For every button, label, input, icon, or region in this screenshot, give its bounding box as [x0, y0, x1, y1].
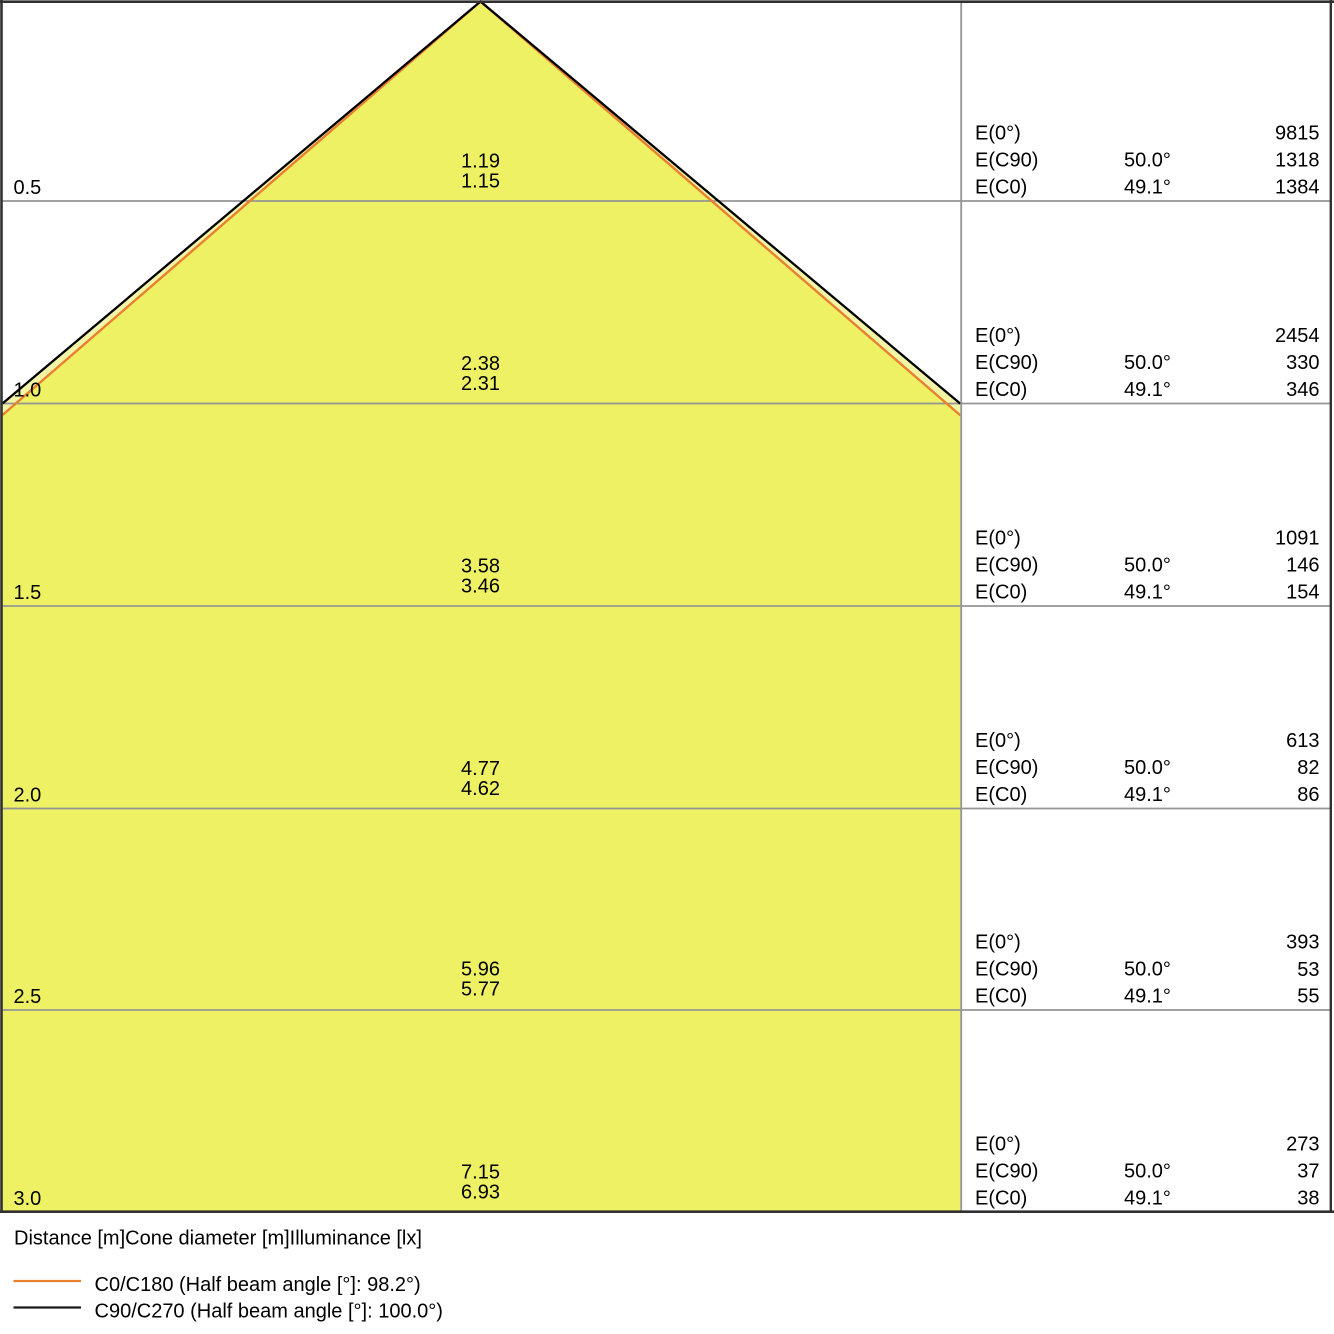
svg-text:3.58: 3.58	[461, 556, 500, 578]
svg-text:330: 330	[1286, 352, 1319, 374]
svg-text:37: 37	[1297, 1161, 1319, 1183]
svg-text:E(C90): E(C90)	[975, 150, 1038, 172]
svg-text:1091: 1091	[1275, 528, 1320, 550]
svg-text:49.1°: 49.1°	[1124, 986, 1171, 1008]
svg-text:2.5: 2.5	[14, 986, 42, 1008]
svg-text:50.0°: 50.0°	[1124, 555, 1171, 577]
svg-text:1.5: 1.5	[14, 582, 42, 604]
svg-text:3.0: 3.0	[14, 1188, 42, 1210]
svg-text:E(0°): E(0°)	[975, 1134, 1021, 1156]
svg-text:1318: 1318	[1275, 150, 1320, 172]
svg-text:C0/C180 (Half beam angle [°]:: C0/C180 (Half beam angle [°]: 98.2°)	[95, 1274, 421, 1296]
svg-text:E(C0): E(C0)	[975, 784, 1027, 806]
svg-text:E(C0): E(C0)	[975, 986, 1027, 1008]
svg-text:E(0°): E(0°)	[975, 123, 1021, 145]
svg-text:E(C90): E(C90)	[975, 757, 1038, 779]
svg-text:E(C0): E(C0)	[975, 379, 1027, 401]
svg-text:0.5: 0.5	[14, 177, 42, 199]
svg-text:2.38: 2.38	[461, 353, 500, 375]
svg-text:49.1°: 49.1°	[1124, 177, 1171, 199]
svg-text:55: 55	[1297, 986, 1319, 1008]
svg-text:4.62: 4.62	[461, 778, 500, 800]
svg-text:1.19: 1.19	[461, 151, 500, 173]
svg-text:273: 273	[1286, 1134, 1319, 1156]
svg-text:1.0: 1.0	[14, 380, 42, 402]
svg-text:6.93: 6.93	[461, 1182, 500, 1204]
svg-text:1.15: 1.15	[461, 171, 500, 193]
svg-text:86: 86	[1297, 784, 1319, 806]
svg-text:E(C0): E(C0)	[975, 1188, 1027, 1210]
svg-text:53: 53	[1297, 959, 1319, 981]
svg-text:9815: 9815	[1275, 123, 1320, 145]
svg-text:2454: 2454	[1275, 325, 1320, 347]
svg-text:393: 393	[1286, 932, 1319, 954]
svg-text:5.77: 5.77	[461, 979, 500, 1001]
svg-text:50.0°: 50.0°	[1124, 352, 1171, 374]
svg-text:49.1°: 49.1°	[1124, 784, 1171, 806]
svg-text:2.31: 2.31	[461, 373, 500, 395]
svg-text:613: 613	[1286, 730, 1319, 752]
svg-text:38: 38	[1297, 1188, 1319, 1210]
svg-text:82: 82	[1297, 757, 1319, 779]
svg-text:E(C90): E(C90)	[975, 959, 1038, 981]
svg-text:Distance [m]Cone diameter [m]I: Distance [m]Cone diameter [m]Illuminance…	[14, 1228, 422, 1250]
svg-text:E(0°): E(0°)	[975, 528, 1021, 550]
svg-text:E(C90): E(C90)	[975, 555, 1038, 577]
svg-text:E(0°): E(0°)	[975, 325, 1021, 347]
svg-text:3.46: 3.46	[461, 576, 500, 598]
svg-text:346: 346	[1286, 379, 1319, 401]
svg-text:2.0: 2.0	[14, 785, 42, 807]
svg-text:E(C90): E(C90)	[975, 352, 1038, 374]
svg-text:146: 146	[1286, 555, 1319, 577]
svg-text:50.0°: 50.0°	[1124, 150, 1171, 172]
svg-text:E(C90): E(C90)	[975, 1161, 1038, 1183]
svg-text:C90/C270 (Half beam angle [°]:: C90/C270 (Half beam angle [°]: 100.0°)	[95, 1300, 443, 1322]
svg-text:49.1°: 49.1°	[1124, 379, 1171, 401]
svg-text:50.0°: 50.0°	[1124, 1161, 1171, 1183]
svg-text:E(C0): E(C0)	[975, 582, 1027, 604]
svg-text:5.96: 5.96	[461, 959, 500, 981]
svg-text:E(0°): E(0°)	[975, 730, 1021, 752]
svg-text:50.0°: 50.0°	[1124, 959, 1171, 981]
svg-text:E(0°): E(0°)	[975, 932, 1021, 954]
svg-text:E(C0): E(C0)	[975, 177, 1027, 199]
svg-text:49.1°: 49.1°	[1124, 1188, 1171, 1210]
svg-text:154: 154	[1286, 582, 1319, 604]
svg-text:4.77: 4.77	[461, 758, 500, 780]
svg-text:50.0°: 50.0°	[1124, 757, 1171, 779]
svg-text:1384: 1384	[1275, 177, 1320, 199]
svg-text:49.1°: 49.1°	[1124, 582, 1171, 604]
svg-text:7.15: 7.15	[461, 1162, 500, 1184]
